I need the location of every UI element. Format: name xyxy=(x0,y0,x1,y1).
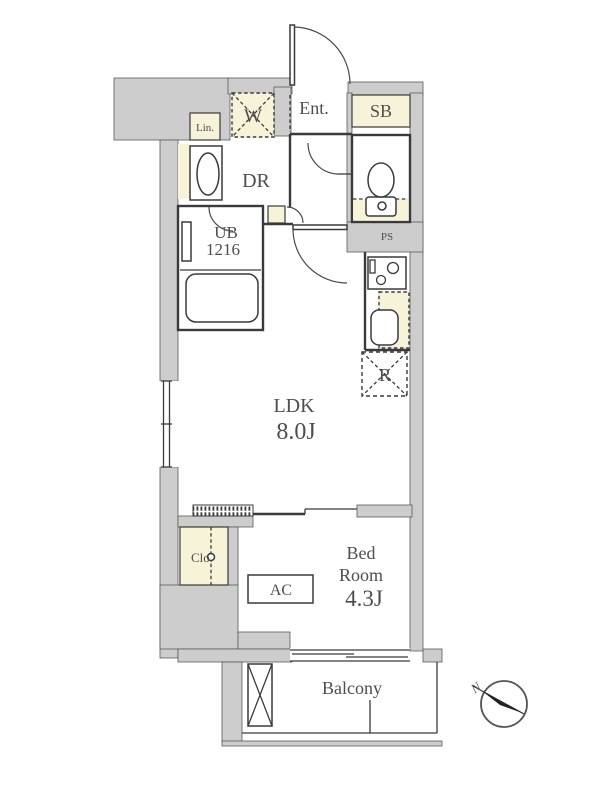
wall-right-foot xyxy=(423,649,442,662)
ldk-door-leaf xyxy=(293,225,347,230)
ldk-area-label: 8.0J xyxy=(276,419,315,445)
toilet-bowl xyxy=(368,163,394,197)
wall-bottom-left-block xyxy=(160,585,238,649)
toilet-flush-knob xyxy=(378,202,386,210)
wall-balcony-left xyxy=(222,662,242,742)
bedroom-area-label: 4.3J xyxy=(345,586,383,611)
floor-plan-page: N Ent. SB W Lin. DR UB 1216 PS R LDK 8.0… xyxy=(0,0,600,800)
compass: N xyxy=(467,678,527,727)
wall-right xyxy=(410,93,423,651)
wall-entrance-left xyxy=(274,87,291,136)
balcony-label: Balcony xyxy=(322,678,382,698)
unit-bath-size: 1216 xyxy=(206,240,240,259)
wall-bottom-band xyxy=(178,649,292,662)
ac-label: AC xyxy=(270,582,292,599)
wall-bottom-step xyxy=(238,632,290,649)
ldk-door-swing xyxy=(293,229,347,283)
entrance-door-swing xyxy=(295,27,351,84)
wall-closet-right xyxy=(228,527,238,586)
hall-shelf-box xyxy=(268,206,285,223)
wall-left-upper xyxy=(160,140,178,381)
vanity-bowl xyxy=(197,153,219,195)
washer-label: W xyxy=(244,106,262,127)
compass-north-label: N xyxy=(467,678,485,697)
floor-plan-drawing: N Ent. SB W Lin. DR UB 1216 PS R LDK 8.0… xyxy=(0,0,600,800)
bath-counter xyxy=(182,222,191,261)
linen-label: Lin. xyxy=(196,122,214,134)
dr-label: DR xyxy=(242,170,270,192)
ps-label: PS xyxy=(381,231,393,243)
kitchen-sink xyxy=(371,310,398,345)
bedroom-label-1: Bed xyxy=(347,543,376,563)
louver-hatch-strip xyxy=(193,505,253,516)
bathtub xyxy=(186,274,258,322)
entrance-label: Ent. xyxy=(299,98,329,118)
bedroom-label-2: Room xyxy=(339,565,383,585)
vanity-side-strip xyxy=(178,144,190,199)
ldk-label: LDK xyxy=(273,395,315,417)
wall-closet-top xyxy=(178,516,253,527)
wall-partition-right xyxy=(357,505,412,517)
fridge-label: R xyxy=(379,365,391,385)
toilet-door-swing xyxy=(308,143,337,174)
entrance-door-leaf xyxy=(290,25,295,85)
closet-label: Clo. xyxy=(191,550,213,565)
dr-door-swing xyxy=(287,207,303,223)
shoe-box-label: SB xyxy=(370,101,392,121)
building-bottom-edge xyxy=(222,741,442,746)
